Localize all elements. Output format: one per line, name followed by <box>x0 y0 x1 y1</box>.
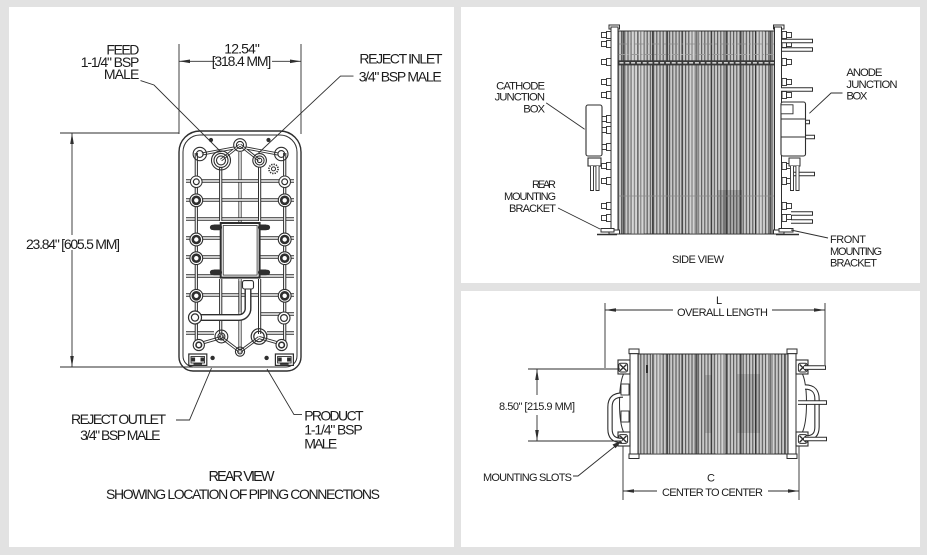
svg-text:3/4" BSP MALE: 3/4" BSP MALE <box>359 69 442 85</box>
svg-text:SHOWING LOCATION OF PIPING CON: SHOWING LOCATION OF PIPING CONNECTIONS <box>106 486 380 502</box>
svg-text:8.50" [215.9 MM]: 8.50" [215.9 MM] <box>499 401 575 413</box>
svg-text:CATHODE: CATHODE <box>496 80 545 92</box>
svg-text:SIDE VIEW: SIDE VIEW <box>672 254 725 266</box>
svg-text:REAR VIEW: REAR VIEW <box>209 469 275 485</box>
svg-text:MOUNTING: MOUNTING <box>504 191 556 203</box>
svg-text:BOX: BOX <box>523 104 545 116</box>
svg-text:C: C <box>707 473 715 485</box>
svg-text:REAR: REAR <box>532 179 556 191</box>
svg-text:JUNCTION: JUNCTION <box>846 79 897 91</box>
svg-text:3/4" BSP MALE: 3/4" BSP MALE <box>80 427 160 443</box>
svg-text:CENTER TO CENTER: CENTER TO CENTER <box>662 487 763 499</box>
svg-text:MOUNTING: MOUNTING <box>830 246 882 258</box>
svg-text:BRACKET: BRACKET <box>830 258 877 270</box>
svg-text:[318.4 MM]: [318.4 MM] <box>212 53 272 69</box>
svg-text:ANODE: ANODE <box>846 67 882 79</box>
svg-text:23.84" [605.5 MM]: 23.84" [605.5 MM] <box>26 236 120 252</box>
svg-text:MALE: MALE <box>304 435 337 451</box>
svg-text:MOUNTING SLOTS: MOUNTING SLOTS <box>483 472 572 484</box>
svg-text:BOX: BOX <box>846 91 867 103</box>
svg-text:REJECT OUTLET: REJECT OUTLET <box>71 411 166 427</box>
svg-text:REJECT INLET: REJECT INLET <box>359 51 442 67</box>
svg-text:OVERALL LENGTH: OVERALL LENGTH <box>677 307 768 319</box>
svg-text:BRACKET: BRACKET <box>509 203 556 215</box>
svg-text:MALE: MALE <box>104 66 140 82</box>
svg-text:L: L <box>716 295 722 307</box>
svg-text:JUNCTION: JUNCTION <box>495 92 545 104</box>
svg-text:FRONT: FRONT <box>830 234 866 246</box>
